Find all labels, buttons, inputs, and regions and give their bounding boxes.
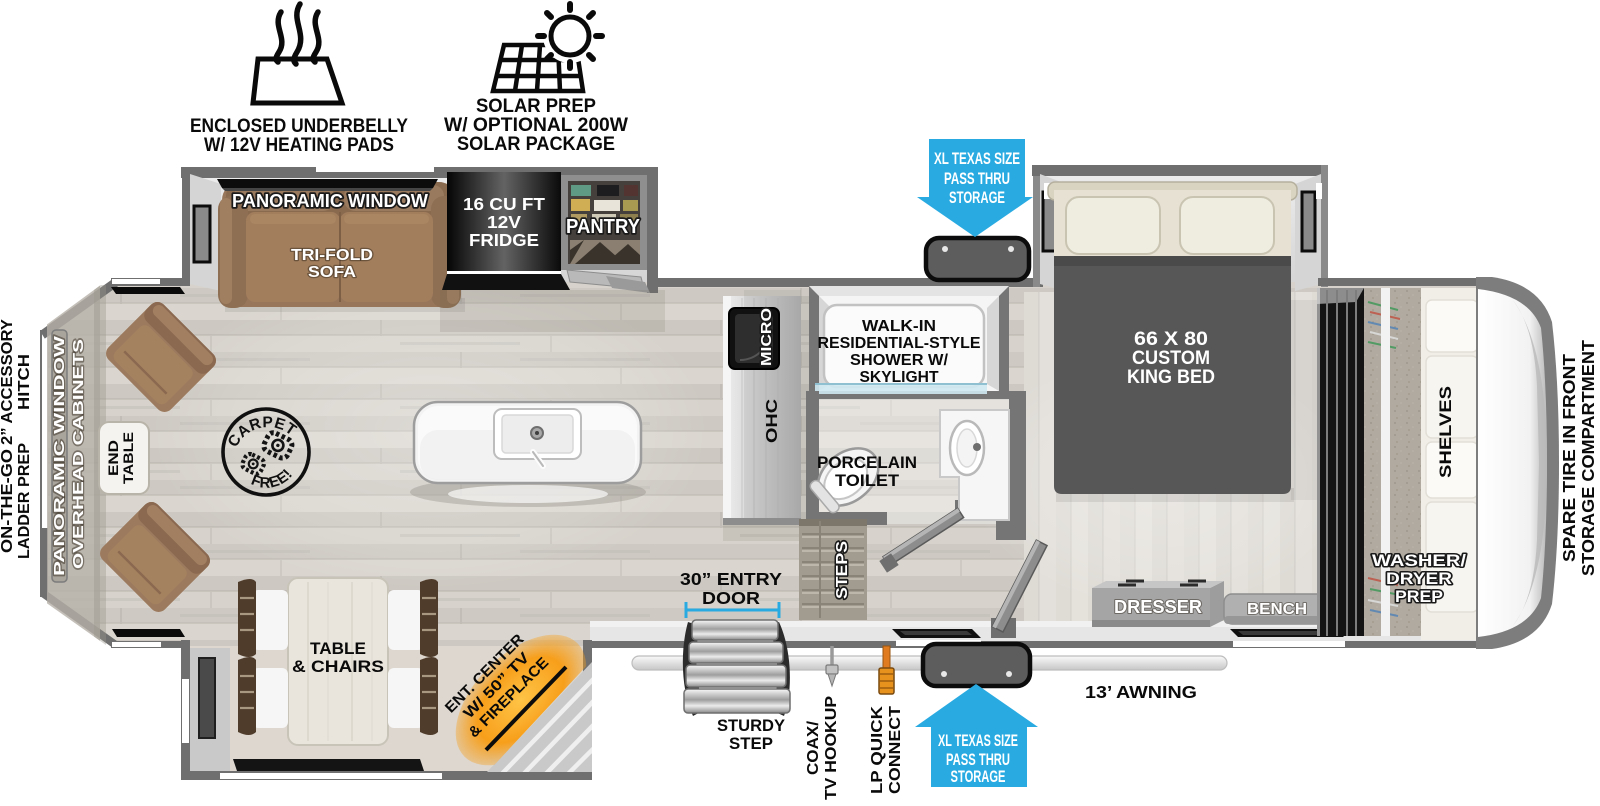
svg-text:END: END bbox=[106, 440, 121, 476]
svg-text:PASS THRU: PASS THRU bbox=[946, 751, 1010, 769]
svg-text:SPARE TIRE IN FRONT: SPARE TIRE IN FRONT bbox=[1559, 354, 1579, 562]
svg-text:W/ OPTIONAL 200W: W/ OPTIONAL 200W bbox=[444, 115, 628, 136]
svg-text:PANORAMIC WINDOW: PANORAMIC WINDOW bbox=[232, 191, 428, 211]
svg-text:ENCLOSED UNDERBELLY: ENCLOSED UNDERBELLY bbox=[190, 116, 408, 137]
svg-text:SKYLIGHT: SKYLIGHT bbox=[860, 369, 940, 386]
svg-text:PREP: PREP bbox=[1395, 588, 1443, 606]
svg-text:PANORAMIC WINDOW: PANORAMIC WINDOW bbox=[52, 336, 68, 576]
svg-text:STORAGE COMPARTMENT: STORAGE COMPARTMENT bbox=[1578, 340, 1598, 576]
svg-text:OVERHEAD CABINETS: OVERHEAD CABINETS bbox=[71, 339, 87, 569]
svg-text:XL TEXAS SIZE: XL TEXAS SIZE bbox=[938, 732, 1018, 750]
svg-text:LP QUICK: LP QUICK bbox=[869, 705, 886, 794]
svg-text:XL TEXAS SIZE: XL TEXAS SIZE bbox=[934, 149, 1020, 168]
svg-text:RESIDENTIAL-STYLE: RESIDENTIAL-STYLE bbox=[818, 335, 981, 352]
svg-text:TRI-FOLD: TRI-FOLD bbox=[291, 247, 373, 264]
svg-text:STORAGE: STORAGE bbox=[951, 768, 1006, 786]
svg-text:KING BED: KING BED bbox=[1127, 367, 1215, 388]
svg-text:13’ AWNING: 13’ AWNING bbox=[1085, 682, 1197, 702]
svg-text:DRYER: DRYER bbox=[1386, 570, 1452, 588]
svg-text:OHC: OHC bbox=[764, 399, 781, 443]
svg-text:TABLE: TABLE bbox=[121, 432, 136, 484]
svg-text:PASS THRU: PASS THRU bbox=[944, 169, 1010, 188]
svg-text:ON-THE-GO: ON-THE-GO bbox=[0, 449, 16, 553]
svg-text:BENCH: BENCH bbox=[1247, 601, 1307, 618]
svg-text:TOILET: TOILET bbox=[835, 471, 900, 490]
svg-text:TABLE: TABLE bbox=[310, 640, 366, 658]
svg-text:SOFA: SOFA bbox=[308, 264, 356, 281]
svg-text:SHELVES: SHELVES bbox=[1437, 386, 1455, 478]
svg-text:WASHER/: WASHER/ bbox=[1372, 552, 1466, 570]
svg-text:STURDY: STURDY bbox=[717, 717, 785, 735]
svg-text:COAX/: COAX/ bbox=[805, 720, 822, 775]
svg-text:HITCH: HITCH bbox=[16, 354, 33, 410]
svg-text:PANTRY: PANTRY bbox=[566, 216, 641, 238]
svg-text:12V: 12V bbox=[487, 212, 521, 232]
svg-text:SOLAR PACKAGE: SOLAR PACKAGE bbox=[457, 134, 615, 155]
svg-text:CONNECT: CONNECT bbox=[887, 705, 904, 794]
svg-text:PORCELAIN: PORCELAIN bbox=[817, 453, 917, 472]
svg-text:16 CU FT: 16 CU FT bbox=[463, 194, 545, 214]
svg-text:FRIDGE: FRIDGE bbox=[469, 230, 539, 250]
svg-text:WALK-IN: WALK-IN bbox=[862, 318, 936, 335]
svg-text:DRESSER: DRESSER bbox=[1114, 597, 1202, 617]
svg-text:STEPS: STEPS bbox=[834, 541, 851, 599]
svg-text:66 X 80: 66 X 80 bbox=[1134, 329, 1208, 350]
svg-text:SHOWER W/: SHOWER W/ bbox=[850, 352, 949, 369]
svg-text:30” ENTRY: 30” ENTRY bbox=[680, 569, 782, 589]
svg-text:MICRO: MICRO bbox=[759, 308, 775, 366]
svg-text:STORAGE: STORAGE bbox=[949, 188, 1005, 207]
svg-text:DOOR: DOOR bbox=[702, 588, 760, 608]
svg-text:& CHAIRS: & CHAIRS bbox=[292, 658, 384, 676]
svg-text:W/ 12V HEATING PADS: W/ 12V HEATING PADS bbox=[204, 135, 394, 156]
svg-text:LADDER PREP: LADDER PREP bbox=[16, 443, 33, 559]
svg-text:2” ACCESSORY: 2” ACCESSORY bbox=[0, 319, 16, 445]
svg-text:TV HOOKUP: TV HOOKUP bbox=[823, 696, 840, 800]
svg-text:STEP: STEP bbox=[729, 735, 773, 753]
svg-text:CUSTOM: CUSTOM bbox=[1132, 348, 1210, 369]
svg-text:SOLAR PREP: SOLAR PREP bbox=[476, 96, 596, 117]
